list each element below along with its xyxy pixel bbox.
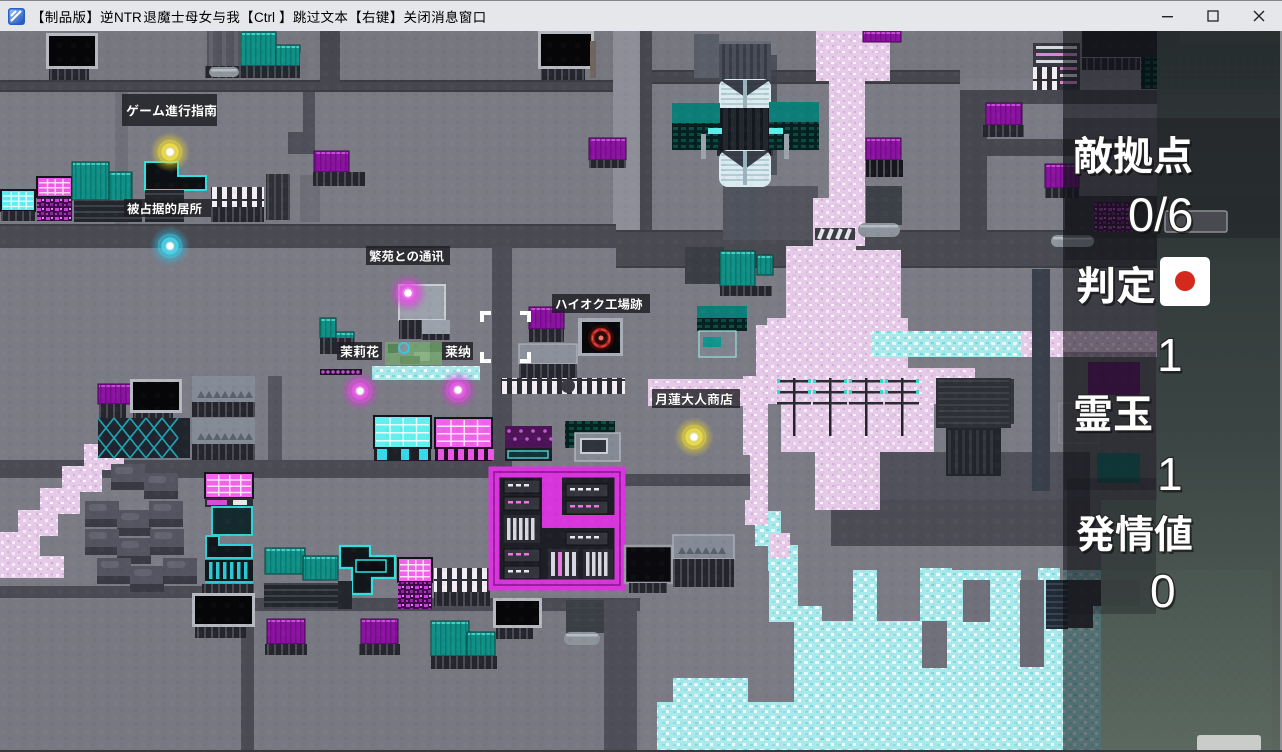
svg-text:1: 1: [1157, 448, 1183, 500]
svg-text:1: 1: [1157, 329, 1183, 381]
svg-text:0/6: 0/6: [1128, 188, 1193, 241]
svg-text:Ctrl: Ctrl: [254, 10, 275, 25]
svg-text:0: 0: [1150, 565, 1176, 617]
svg-text:NTR: NTR: [114, 10, 142, 25]
